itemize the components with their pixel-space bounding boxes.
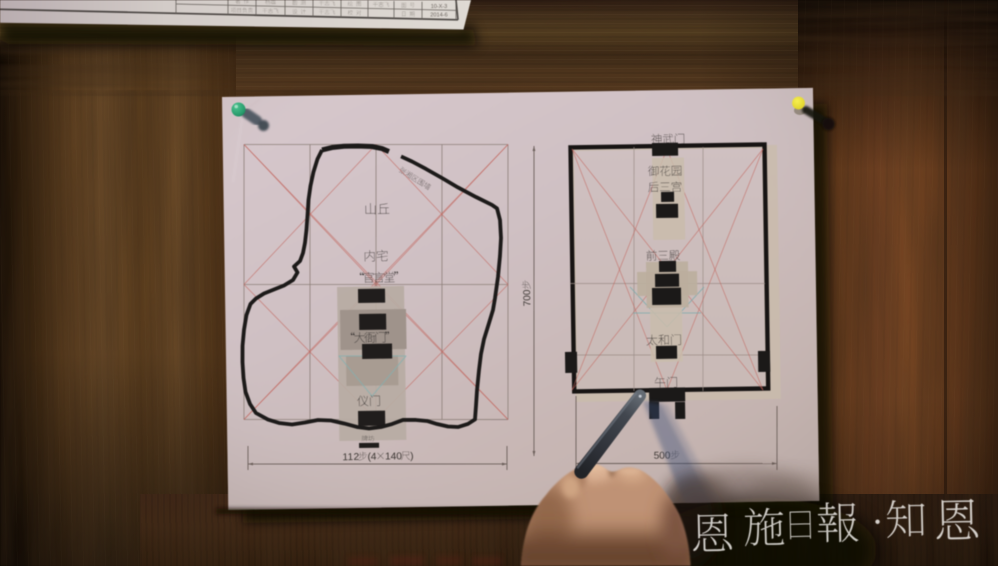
svg-text:(4: (4 (367, 452, 377, 463)
svg-text:): ) (410, 451, 414, 462)
svg-text:140: 140 (385, 451, 402, 462)
svg-text:10-X-3: 10-X-3 (431, 4, 448, 10)
svg-text:112: 112 (342, 452, 359, 463)
svg-text:700: 700 (522, 289, 533, 306)
svg-text:2014-6: 2014-6 (430, 13, 447, 19)
